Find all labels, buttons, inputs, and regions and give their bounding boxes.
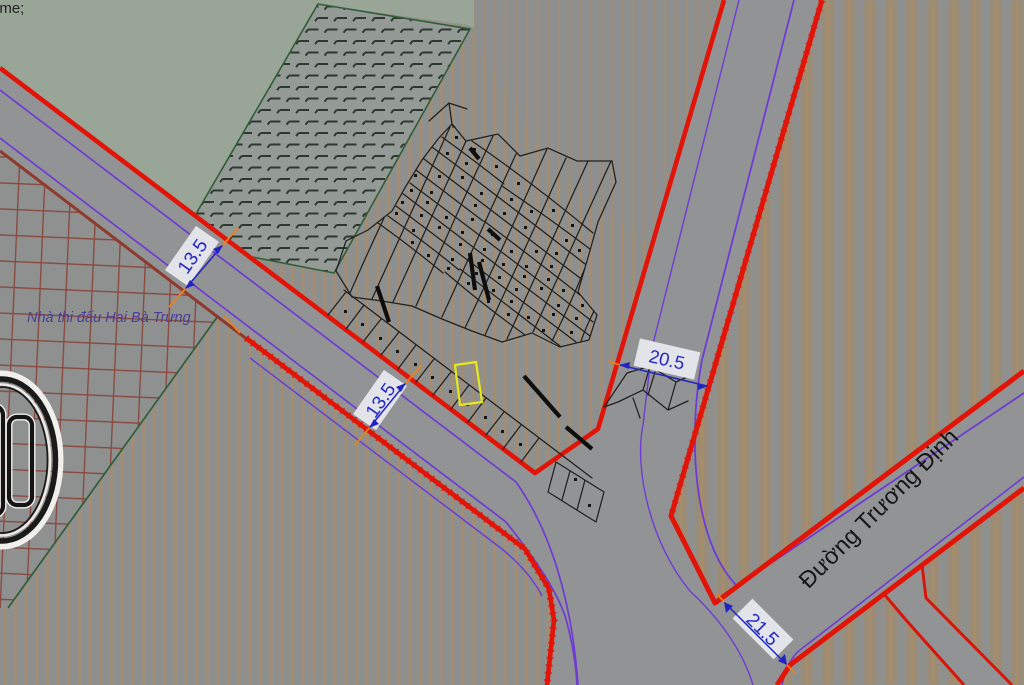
svg-text:Nhà thi đấu Hai Bà Trưng: Nhà thi đấu Hai Bà Trưng (27, 310, 191, 326)
svg-text:ame;: ame; (0, 0, 24, 17)
